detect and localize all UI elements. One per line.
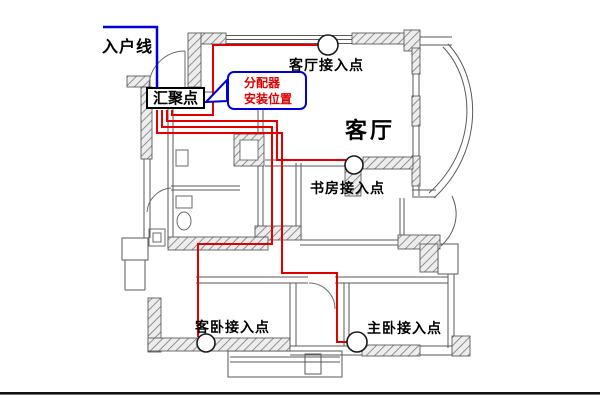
living-room-label: 客厅 — [345, 113, 395, 145]
entrance-door-arc — [149, 51, 185, 87]
guest-bedroom-access-point-label: 客卧接入点 — [195, 317, 270, 337]
study-access-point-marker — [345, 156, 363, 174]
splitter-callout-line1: 分配器 — [244, 75, 303, 91]
callout-pointer — [206, 80, 227, 102]
master-bedroom-access-point-marker — [347, 332, 367, 352]
bathroom-door-arc — [147, 188, 171, 212]
image-bottom-border — [0, 392, 600, 395]
wall-niche — [240, 140, 258, 160]
floorplan-diagram: 入户线 汇聚点 分配器 安装位置 客厅接入点 客厅 书房接入点 客卧接入点 主卧… — [0, 0, 600, 400]
master-bedroom-access-point-label: 主卧接入点 — [367, 318, 442, 338]
fixtures — [149, 150, 192, 246]
living-room-access-point-label: 客厅接入点 — [289, 55, 364, 75]
bedroom-door-arc — [309, 283, 335, 309]
study-access-point-label: 书房接入点 — [310, 178, 385, 198]
incoming-line-label: 入户线 — [102, 33, 153, 57]
splitter-callout-line2: 安装位置 — [244, 91, 303, 107]
living-room-access-point-marker — [318, 35, 338, 55]
convergence-point-box: 汇聚点 — [146, 87, 205, 109]
splitter-location-callout: 分配器 安装位置 — [227, 71, 307, 110]
